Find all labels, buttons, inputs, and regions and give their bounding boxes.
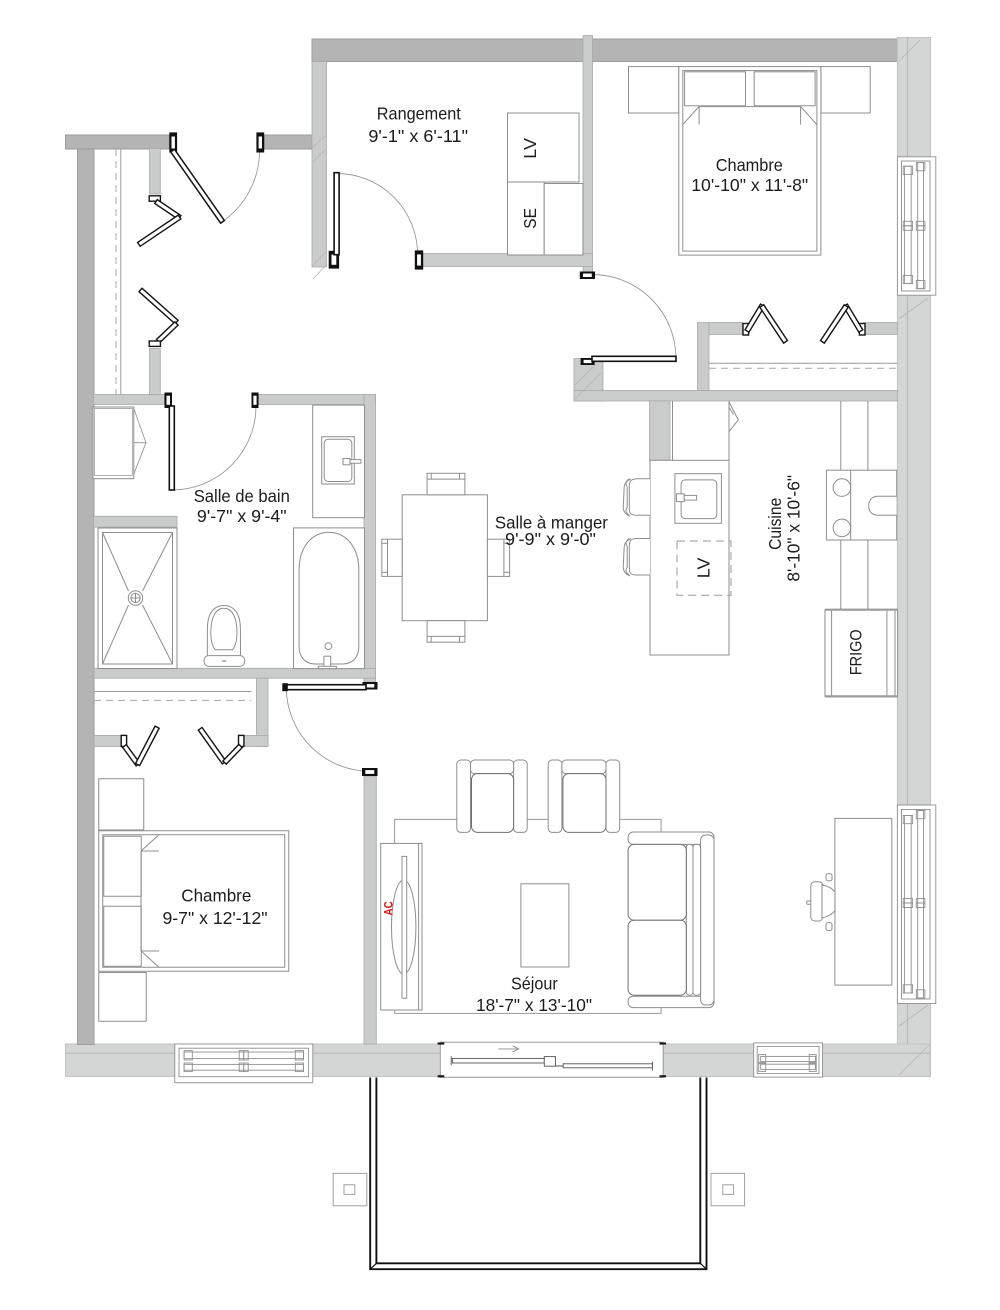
svg-text:Chambre: Chambre (181, 885, 251, 905)
svg-text:8'-10" x 10'-6": 8'-10" x 10'-6" (784, 475, 804, 582)
svg-text:9'-1" x 6'-11": 9'-1" x 6'-11" (368, 126, 468, 146)
svg-text:9-7" x 12'-12": 9-7" x 12'-12" (163, 908, 268, 928)
svg-text:10'-10" x 11'-8": 10'-10" x 11'-8" (691, 175, 808, 195)
svg-text:Salle de bain: Salle de bain (194, 486, 290, 506)
svg-text:Séjour: Séjour (511, 974, 558, 994)
svg-text:FRIGO: FRIGO (847, 629, 866, 675)
svg-text:Cuisine: Cuisine (765, 498, 785, 550)
svg-text:9'-9" x 9'-0": 9'-9" x 9'-0" (505, 529, 596, 549)
svg-text:18'-7" x 13'-10": 18'-7" x 13'-10" (476, 995, 592, 1015)
svg-text:LV: LV (520, 138, 540, 159)
svg-text:Chambre: Chambre (716, 155, 783, 175)
svg-text:Rangement: Rangement (377, 104, 461, 124)
svg-text:AC: AC (382, 901, 396, 915)
svg-text:LV: LV (694, 557, 714, 578)
svg-text:9'-7" x 9'-4": 9'-7" x 9'-4" (197, 506, 287, 526)
svg-text:SE: SE (520, 208, 540, 229)
